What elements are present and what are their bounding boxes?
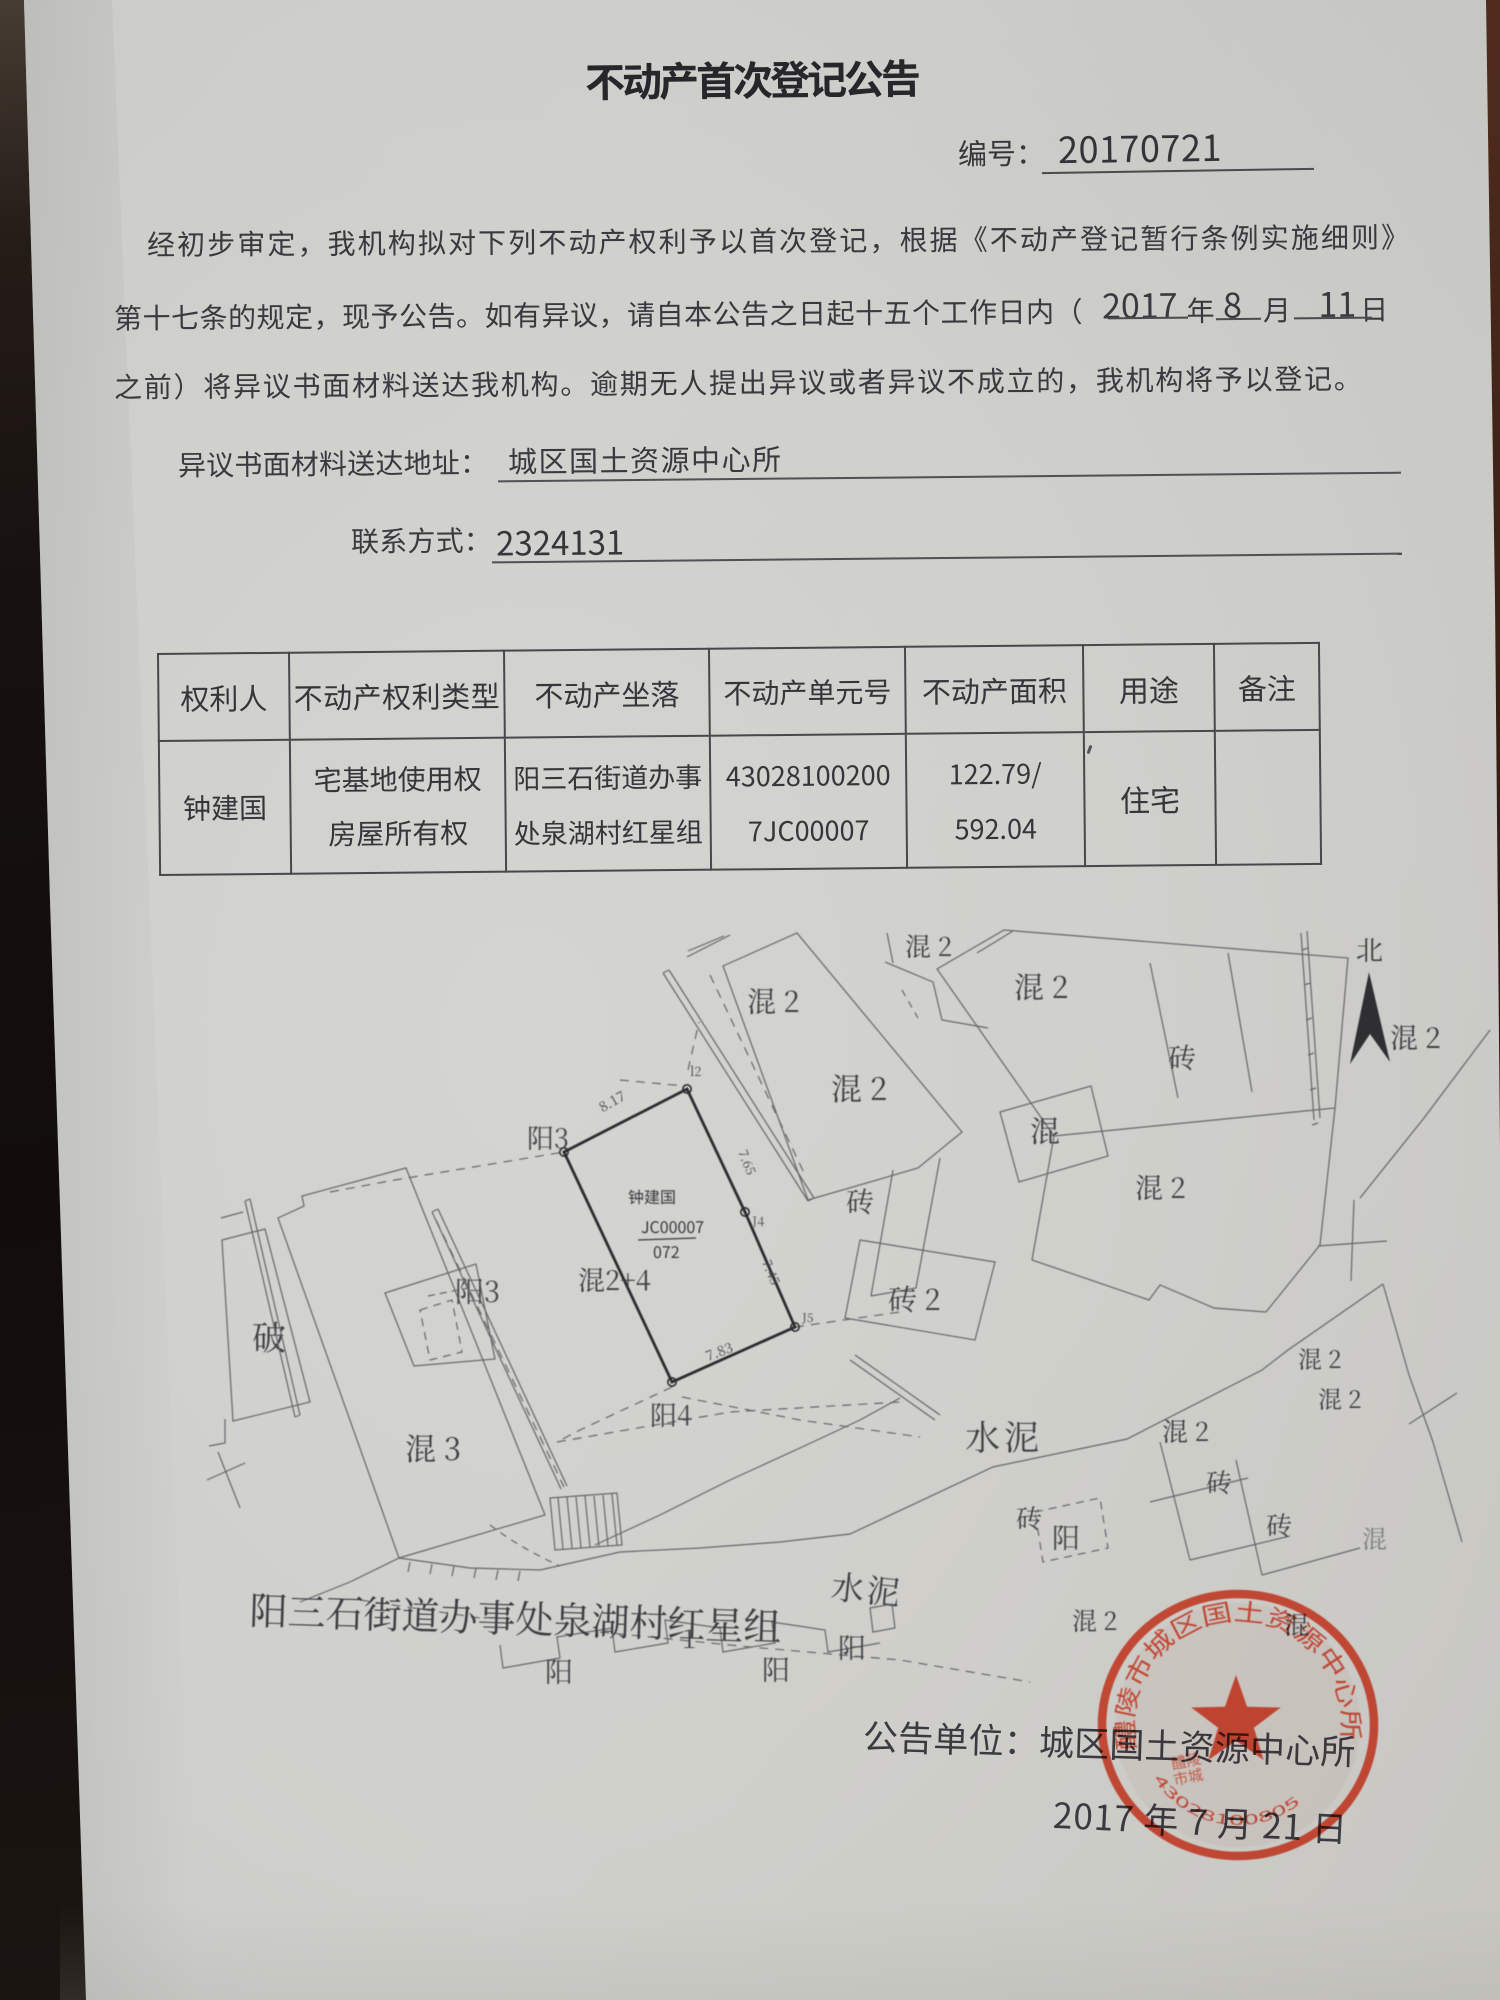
svg-text:混: 混 [1030,1107,1060,1151]
svg-text:阳4: 阳4 [650,1394,692,1433]
svg-text:8.17: 8.17 [595,1086,629,1117]
svg-text:J4: J4 [751,1211,764,1230]
svg-text:砖: 砖 [1206,1463,1232,1500]
svg-text:混 2: 混 2 [747,980,800,1021]
svg-text:混 2: 混 2 [1390,1017,1441,1057]
svg-text:阳: 阳 [1052,1517,1080,1557]
svg-text:砖: 砖 [846,1181,874,1221]
svg-text:混 2: 混 2 [1135,1167,1186,1207]
svg-text:7.83: 7.83 [703,1337,736,1366]
svg-text:阳三石街道办事处泉湖村红星组: 阳三石街道办事处泉湖村红星组 [249,1580,782,1652]
svg-text:混: 混 [1362,1520,1387,1556]
svg-text:砖: 砖 [1266,1506,1292,1543]
svg-text:7.45: 7.45 [758,1256,785,1287]
svg-text:钟建国: 钟建国 [628,1184,676,1208]
svg-text:J5: J5 [801,1309,813,1326]
svg-text:混 2: 混 2 [1162,1412,1209,1449]
svg-text:混 2: 混 2 [1318,1380,1362,1415]
svg-text:阳: 阳 [838,1627,866,1667]
svg-text:072: 072 [653,1239,680,1263]
svg-text:JC00007: JC00007 [641,1214,704,1238]
svg-text:阳: 阳 [545,1651,573,1691]
svg-text:7.65: 7.65 [734,1146,761,1177]
svg-text:混 3: 混 3 [405,1424,461,1469]
svg-text:混 2: 混 2 [905,927,952,964]
svg-text:阳: 阳 [762,1649,790,1689]
svg-text:破: 破 [252,1311,286,1360]
svg-text:阳3: 阳3 [527,1117,569,1156]
svg-text:混 2: 混 2 [831,1064,887,1109]
svg-text:砖: 砖 [1168,1037,1196,1077]
svg-text:混 2: 混 2 [1298,1340,1342,1375]
svg-text:水泥: 水泥 [965,1411,1043,1461]
svg-text:混2+4: 混2+4 [578,1259,651,1298]
svg-text:l2: l2 [690,1061,702,1080]
svg-text:北: 北 [1356,929,1383,968]
svg-text:水泥: 水泥 [829,1561,906,1615]
svg-text:混 2: 混 2 [1014,963,1068,1007]
